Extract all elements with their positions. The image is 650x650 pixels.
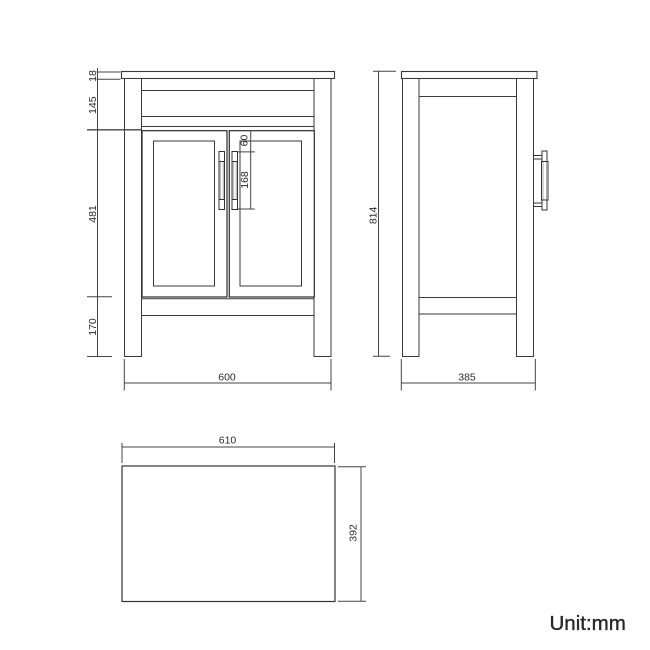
svg-text:610: 610 <box>219 435 237 447</box>
svg-text:145: 145 <box>87 96 99 114</box>
svg-text:481: 481 <box>87 205 99 223</box>
svg-text:168: 168 <box>239 171 251 189</box>
svg-text:385: 385 <box>458 372 476 384</box>
svg-text:18: 18 <box>87 70 99 82</box>
svg-text:814: 814 <box>368 206 380 224</box>
svg-text:170: 170 <box>87 318 99 336</box>
svg-text:60: 60 <box>239 135 251 147</box>
svg-text:Unit:mm: Unit:mm <box>550 612 626 635</box>
svg-text:600: 600 <box>218 372 236 384</box>
svg-text:392: 392 <box>348 524 360 542</box>
